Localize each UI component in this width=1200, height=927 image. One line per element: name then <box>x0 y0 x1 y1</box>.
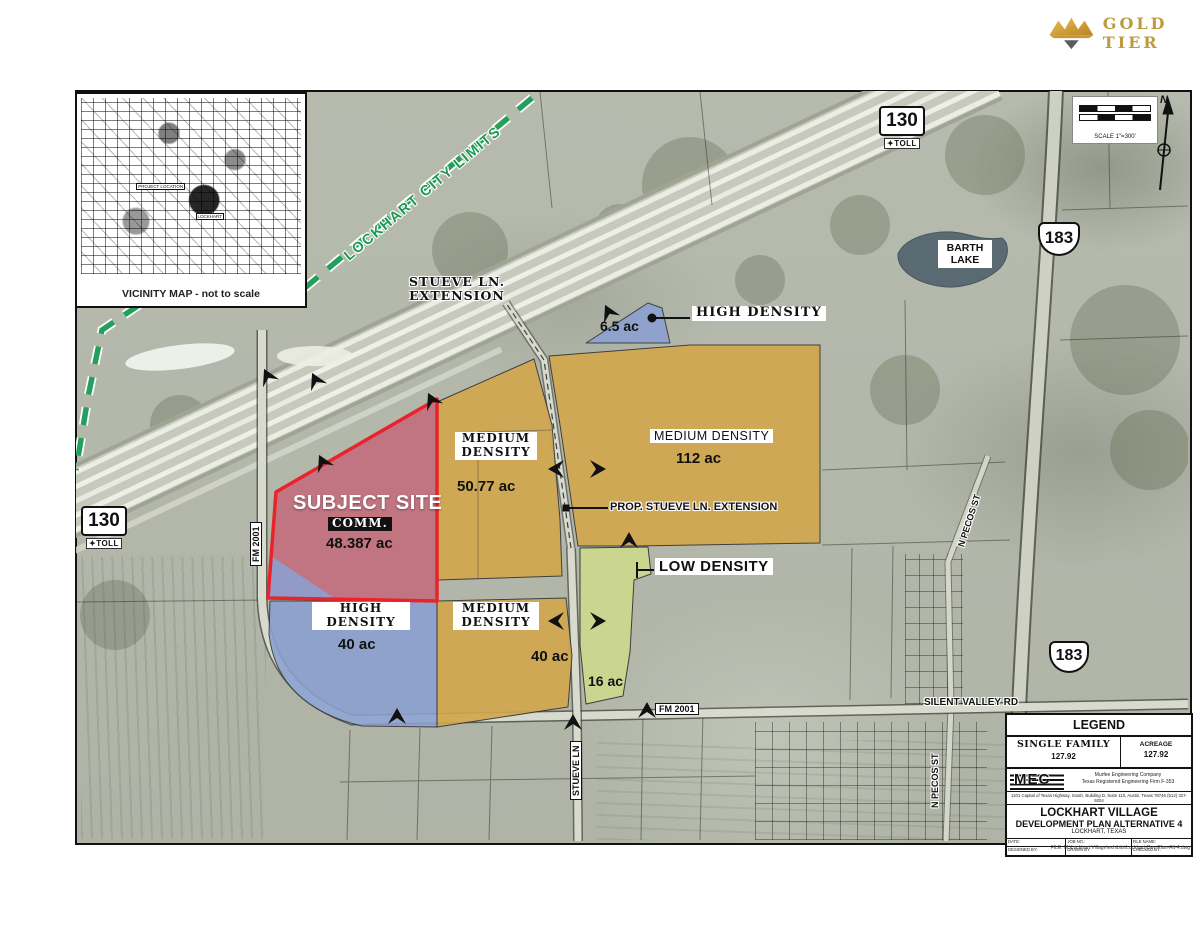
vicinity-caption: VICINITY MAP - not to scale <box>77 288 305 300</box>
field-texture-left <box>81 557 266 839</box>
gold-tier-text: GOLD TIER <box>1103 14 1198 52</box>
crown-icon <box>1048 10 1095 56</box>
scale-bar: SCALE 1"=300' <box>1072 96 1158 144</box>
subject-site-use: COMM. <box>328 517 392 531</box>
fm-2001-label-vertical: FM 2001 <box>250 522 262 566</box>
project-location: LOCKHART, TEXAS <box>1007 829 1191 835</box>
parcel-grid-pecos <box>905 554 963 704</box>
vicinity-map: PROJECT LOCATION LOCKHART VICINITY MAP -… <box>75 92 307 308</box>
low-density-16-acreage: 16 ac <box>588 673 623 689</box>
legend-acreage-header: ACREAGE <box>1121 739 1191 748</box>
vicinity-lockhart-label: LOCKHART <box>196 213 224 220</box>
route-shield-130-top: 130 <box>879 106 925 136</box>
gold-tier-logo: GOLD TIER <box>1048 10 1198 56</box>
silent-valley-rd-label: SILENT VALLEY RD <box>924 697 1018 709</box>
legend-table: SINGLE FAMILY 127.92 ACREAGE 127.92 <box>1007 737 1191 769</box>
toll-chip-left: ✦TOLL <box>86 538 122 549</box>
firm-address: 1101 Capital of Texas Highway, South, Bu… <box>1007 791 1191 803</box>
high-density-40-label: HIGH DENSITY <box>312 602 410 630</box>
subdivision-grid <box>755 722 987 840</box>
legend-acreage-value: 127.92 <box>1121 748 1191 759</box>
stueve-extension-label: STUEVE LN. EXTENSION <box>402 275 512 304</box>
subject-site-acreage: 48.387 ac <box>326 535 393 552</box>
medium-density-40-label: MEDIUM DENSITY <box>453 602 539 630</box>
vicinity-parcel-pattern <box>81 98 301 274</box>
route-shield-130-left: 130 <box>81 506 127 536</box>
fm-2001-label-bottom: FM 2001 <box>655 703 699 715</box>
north-label: N <box>1160 94 1168 107</box>
legend-family-header: SINGLE FAMILY <box>1007 739 1120 750</box>
legend-family-value: 127.92 <box>1007 750 1120 761</box>
high-density-40-acreage: 40 ac <box>338 636 376 653</box>
medium-density-112-label: MEDIUM DENSITY <box>650 429 773 443</box>
site-plan-page: PROJECT LOCATION LOCKHART VICINITY MAP -… <box>0 0 1200 927</box>
scale-caption: SCALE 1"=300' <box>1073 134 1157 140</box>
legend-title: LEGEND <box>1007 715 1191 737</box>
sheet-title: DEVELOPMENT PLAN ALTERNATIVE 4 <box>1007 819 1191 829</box>
project-title-row: LOCKHART VILLAGE DEVELOPMENT PLAN ALTERN… <box>1007 805 1191 839</box>
file-path-note: FILE: M:\Lockhart Village\exhibits\Lockh… <box>860 845 1190 851</box>
firm-name-lines: Murfee Engineering Company Texas Registe… <box>1067 772 1189 786</box>
medium-density-5077-label: MEDIUM DENSITY <box>455 432 537 460</box>
vicinity-project-location-label: PROJECT LOCATION <box>136 183 185 190</box>
scale-bar-segments-top <box>1079 105 1151 112</box>
medium-density-5077-acreage: 50.77 ac <box>457 478 515 495</box>
subject-site-title: SUBJECT SITE <box>293 492 442 515</box>
barth-lake-label: BARTH LAKE <box>938 240 992 268</box>
prop-stueve-extension-label: PROP. STUEVE LN. EXTENSION <box>610 501 777 514</box>
n-pecos-st-label-lower: N PECOS ST <box>930 753 940 808</box>
low-density-label: LOW DENSITY <box>655 558 773 575</box>
project-name: LOCKHART VILLAGE <box>1007 805 1191 819</box>
high-density-65-label: HIGH DENSITY <box>692 306 826 321</box>
stueve-ln-label: STUEVE LN <box>570 741 582 800</box>
toll-chip-top: ✦TOLL <box>884 138 920 149</box>
medium-density-40-acreage: 40 ac <box>531 648 569 665</box>
firm-row: MEC Murfee Engineering Company Texas Reg… <box>1007 769 1191 805</box>
high-density-65-acreage: 6.5 ac <box>600 318 639 334</box>
mec-logo: MEC <box>1010 772 1064 790</box>
scale-bar-segments-bottom <box>1079 114 1151 121</box>
medium-density-112-acreage: 112 ac <box>676 450 721 467</box>
title-block: LEGEND SINGLE FAMILY 127.92 ACREAGE 127.… <box>1005 713 1193 857</box>
